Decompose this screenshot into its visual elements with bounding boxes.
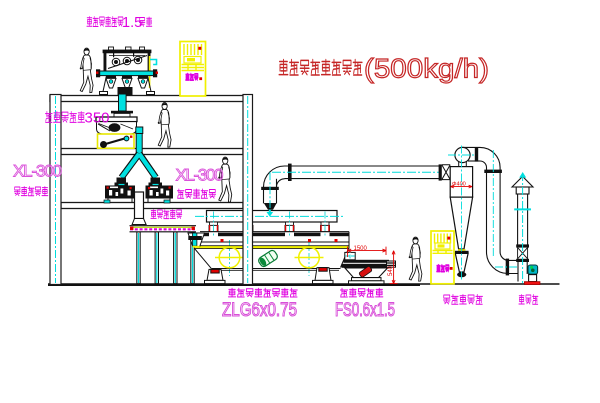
svg-text:Φ400: Φ400 — [452, 181, 466, 187]
svg-text:350: 350 — [85, 110, 110, 127]
svg-text:XL-300: XL-300 — [176, 166, 224, 185]
svg-text:1.5: 1.5 — [122, 15, 142, 31]
svg-text:540: 540 — [388, 265, 394, 276]
svg-text:XL-300: XL-300 — [13, 162, 62, 181]
svg-text:1500: 1500 — [354, 246, 368, 252]
svg-text:ZLG6x0.75: ZLG6x0.75 — [222, 300, 297, 321]
svg-text:FS0.6x1.5: FS0.6x1.5 — [335, 300, 395, 321]
svg-text:(500kg/h): (500kg/h) — [364, 54, 489, 84]
